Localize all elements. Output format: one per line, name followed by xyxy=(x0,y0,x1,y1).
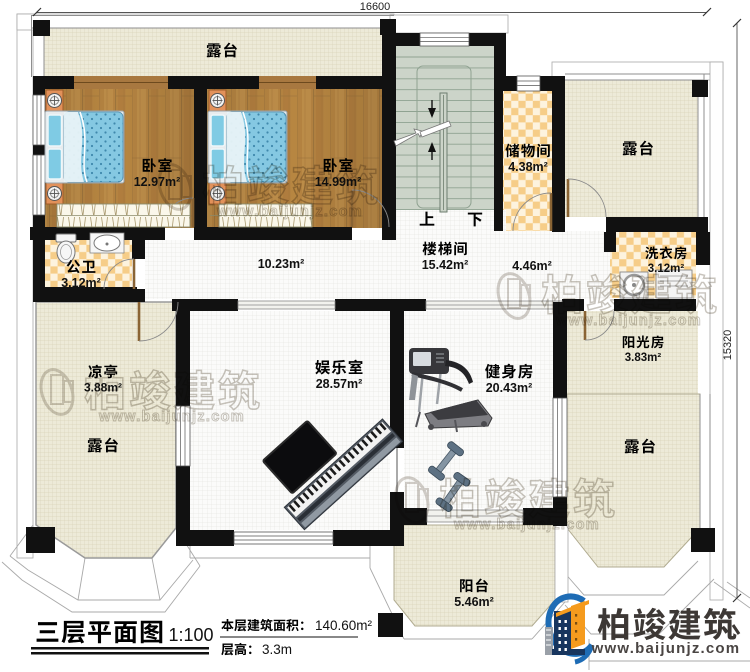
svg-text:www.baijunjz.com: www.baijunjz.com xyxy=(216,204,363,220)
svg-text:28.57m²: 28.57m² xyxy=(316,377,363,391)
svg-text:www.baijunjz.com: www.baijunjz.com xyxy=(555,313,702,329)
svg-text:3.3m: 3.3m xyxy=(262,642,292,657)
svg-text:www.baijunjz.com: www.baijunjz.com xyxy=(591,640,741,657)
svg-text:10.23m²: 10.23m² xyxy=(258,257,305,271)
svg-text:www.baijunjz.com: www.baijunjz.com xyxy=(98,409,245,425)
svg-text:140.60m²: 140.60m² xyxy=(315,618,373,633)
svg-text:3.83m²: 3.83m² xyxy=(625,352,662,364)
svg-text:12.97m²: 12.97m² xyxy=(134,175,181,189)
svg-text:1:100: 1:100 xyxy=(168,625,213,645)
svg-text:20.43m²: 20.43m² xyxy=(486,381,533,395)
svg-text:www.baijunjz.com: www.baijunjz.com xyxy=(453,517,600,533)
svg-text:5.46m²: 5.46m² xyxy=(454,595,494,609)
svg-text:4.38m²: 4.38m² xyxy=(508,160,548,174)
svg-text:15320: 15320 xyxy=(722,330,734,361)
svg-text:3.12m²: 3.12m² xyxy=(648,263,685,275)
svg-text:15.42m²: 15.42m² xyxy=(422,258,469,272)
svg-text:16600: 16600 xyxy=(360,1,391,13)
svg-text:3.12m²: 3.12m² xyxy=(61,276,101,290)
svg-text:4.46m²: 4.46m² xyxy=(512,259,552,273)
